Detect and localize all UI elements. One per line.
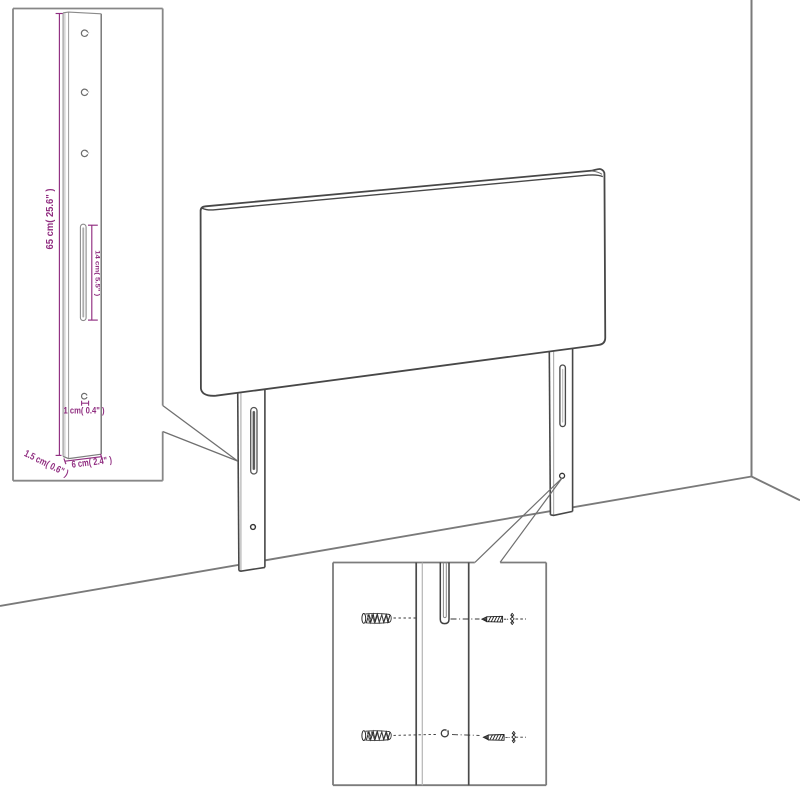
svg-text:65 cm( 25.6" ): 65 cm( 25.6" ) bbox=[45, 189, 56, 250]
svg-text:14 cm( 5.5" ): 14 cm( 5.5" ) bbox=[94, 250, 101, 296]
svg-text:1 cm( 0.4" ): 1 cm( 0.4" ) bbox=[64, 406, 105, 416]
